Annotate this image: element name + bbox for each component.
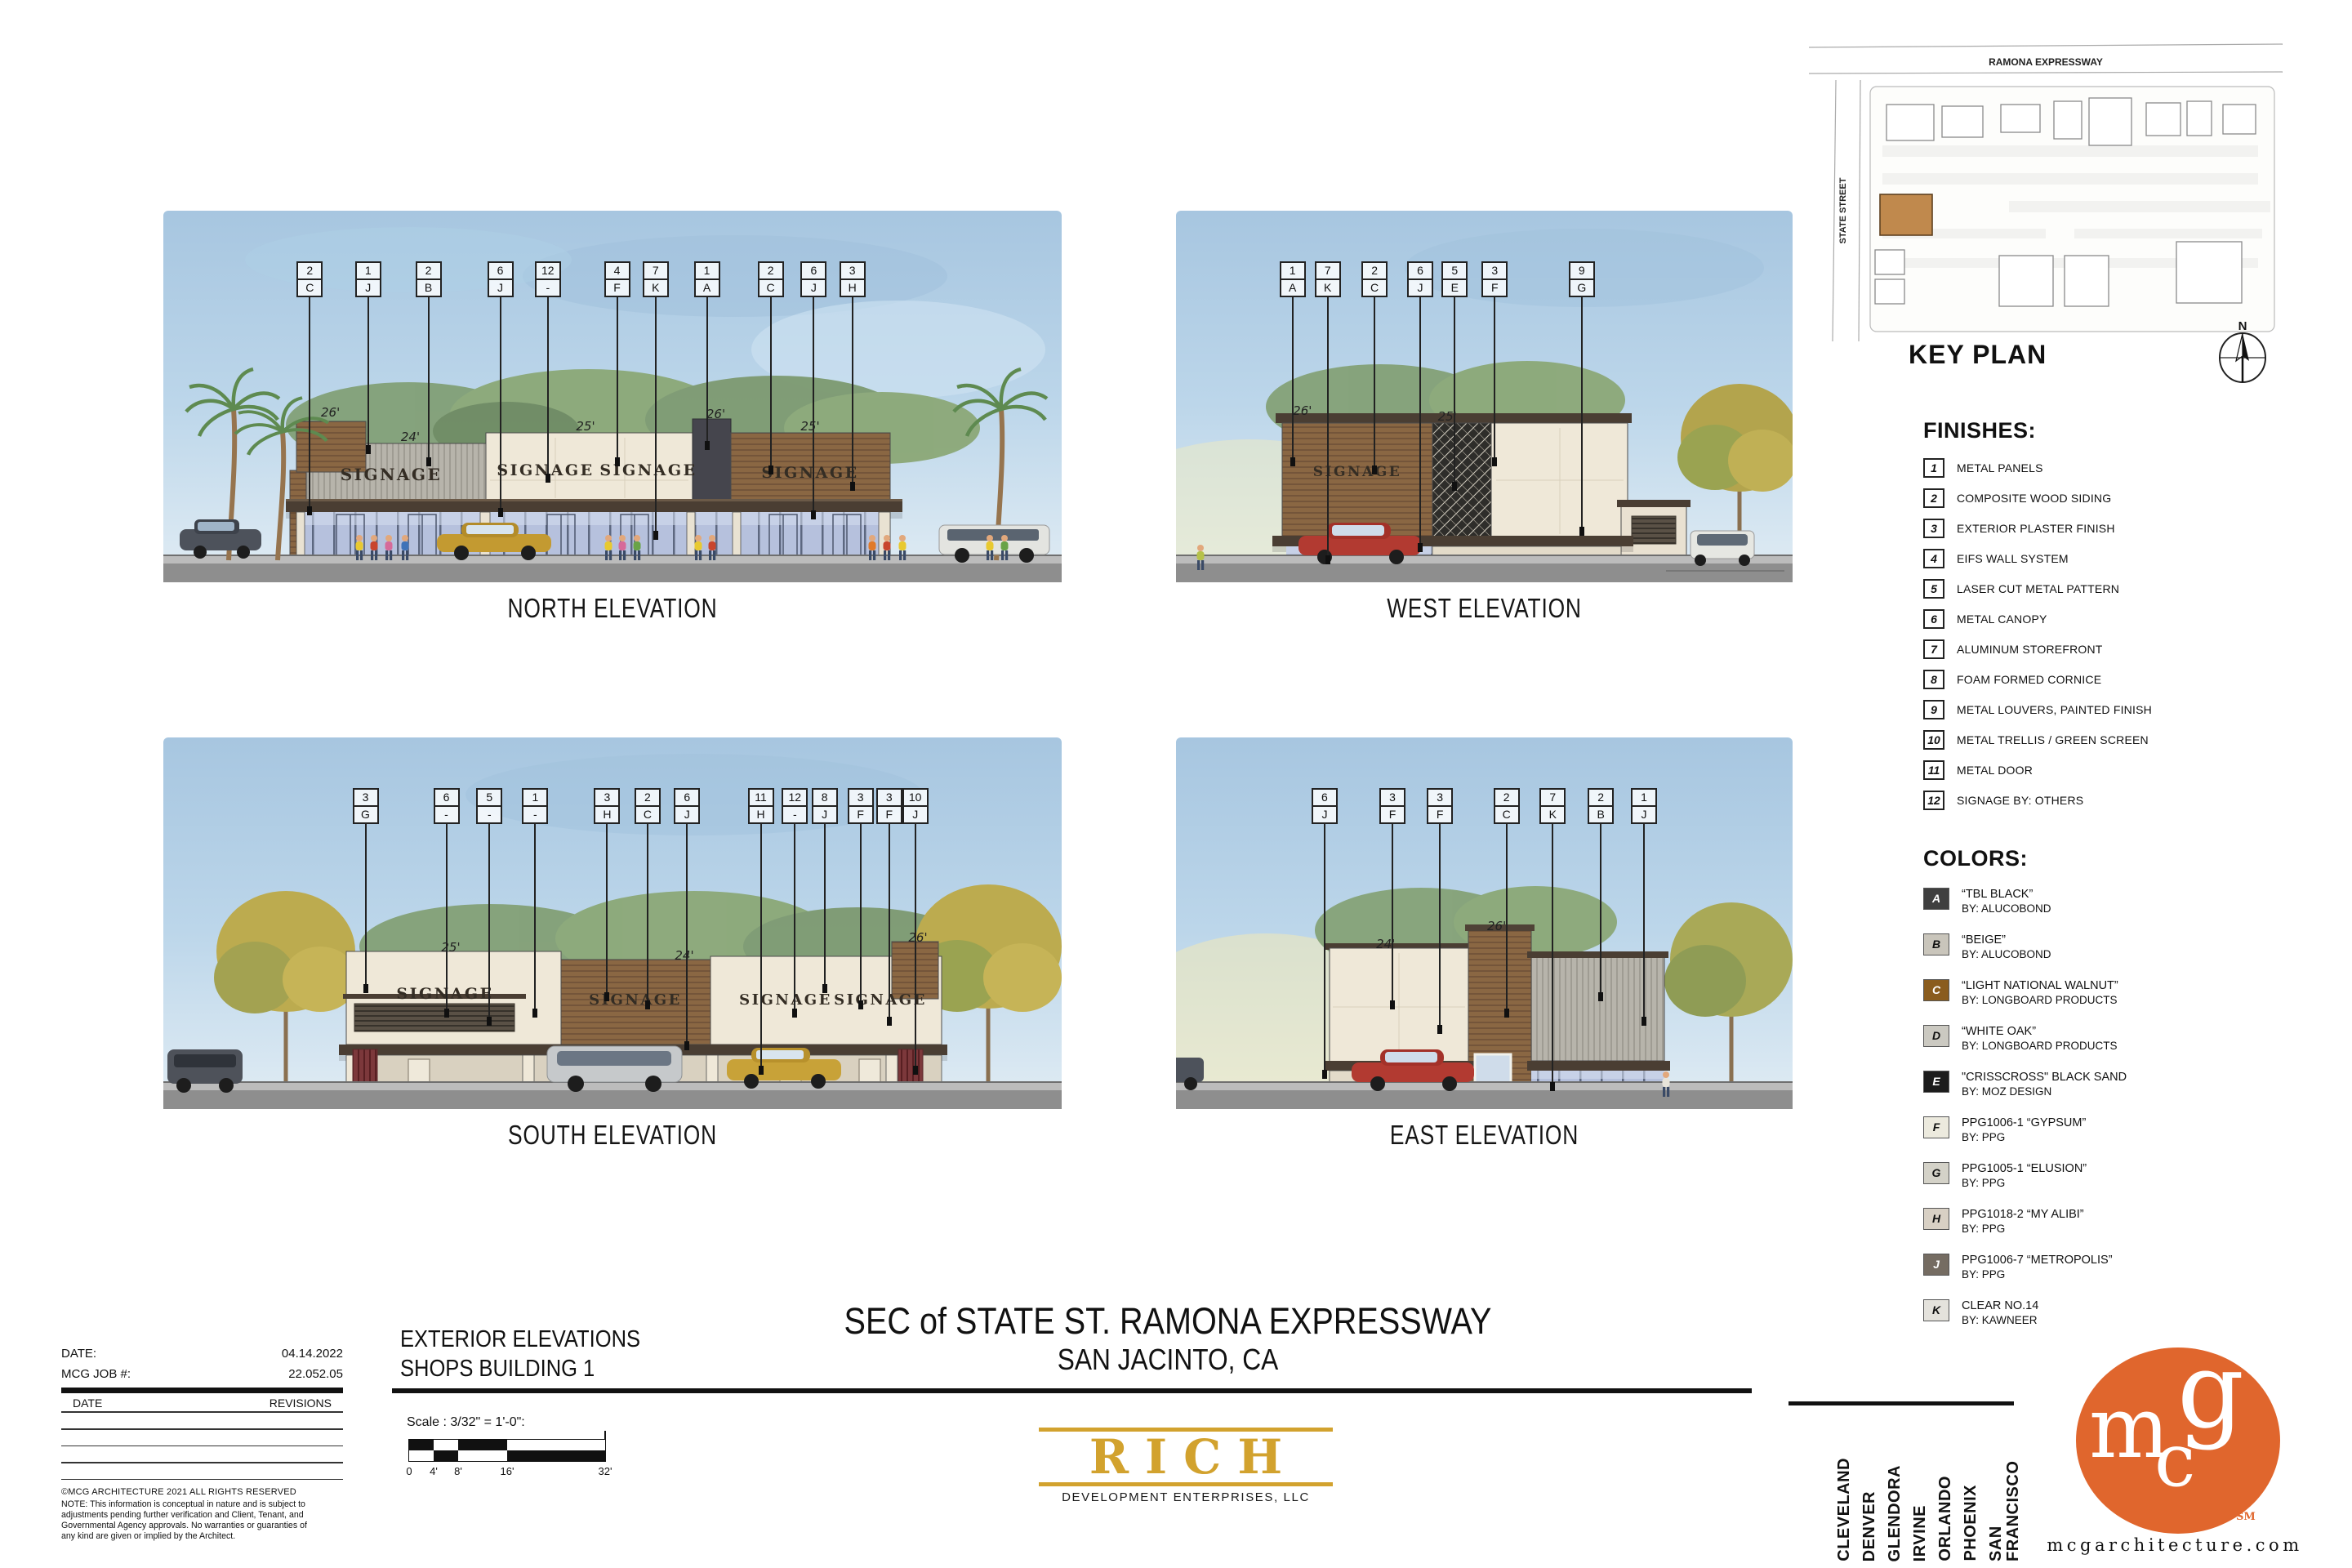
finish-number: 10 (1923, 730, 1944, 750)
rich-logo-subtitle: DEVELOPMENT ENTERPRISES, LLC (1039, 1490, 1333, 1504)
finish-number: 3 (1923, 519, 1944, 538)
finish-tag: 6J (1407, 261, 1433, 552)
finish-tag: 3F (1379, 788, 1405, 1009)
revisions-header: REVISIONS (269, 1396, 332, 1410)
finish-tag: 3H (594, 788, 620, 1001)
rich-logo: RICH DEVELOPMENT ENTERPRISES, LLC (1039, 1428, 1333, 1504)
finish-tag: 6J (488, 261, 514, 517)
project-title-line2: SAN JACINTO, CA (737, 1343, 1599, 1377)
project-title-line1: SEC of STATE ST. RAMONA EXPRESSWAY (737, 1300, 1599, 1343)
office-city: DENVER (1861, 1491, 1878, 1561)
finish-item: 11 METAL DOOR (1923, 760, 2348, 780)
mcg-architecture-logo: m g c SM (2076, 1347, 2280, 1537)
scale-tick: 8' (454, 1465, 462, 1477)
finish-tag: 3F (1481, 261, 1508, 466)
finish-item: 4 EIFS WALL SYSTEM (1923, 549, 2348, 568)
dimension-label: 25' (576, 419, 595, 434)
color-item: A “TBL BLACK” BY: ALUCOBOND (1923, 888, 2348, 915)
color-item: K CLEAR NO.14 BY: KAWNEER (1923, 1299, 2348, 1327)
finishes-title: FINISHES: (1923, 418, 2348, 443)
color-swatch: A (1923, 888, 1949, 910)
job-label: MCG JOB #: (61, 1364, 131, 1384)
finish-item: 5 LASER CUT METAL PATTERN (1923, 579, 2348, 599)
office-city: IRVINE (1912, 1505, 1929, 1561)
job-value: 22.052.05 (288, 1364, 343, 1384)
graphic-scale-bar: 04'8'16'32' (408, 1439, 606, 1462)
finish-tag: 12- (535, 261, 561, 483)
key-plan: RAMONA EXPRESSWAY STATE STREET (1805, 23, 2287, 341)
scale-tick: 32' (599, 1465, 612, 1477)
finish-tag: 7K (1539, 788, 1566, 1091)
finish-item: 3 EXTERIOR PLASTER FINISH (1923, 519, 2348, 538)
color-swatch: J (1923, 1254, 1949, 1276)
finish-item: 2 COMPOSITE WOOD SIDING (1923, 488, 2348, 508)
color-swatch: K (1923, 1299, 1949, 1321)
finish-tag: 12- (782, 788, 808, 1018)
west-elevation-panel: SIGNAGE 1A (1176, 211, 1793, 644)
finish-item: 10 METAL TRELLIS / GREEN SCREEN (1923, 730, 2348, 750)
finish-item: 1 METAL PANELS (1923, 458, 2348, 478)
color-swatch: E (1923, 1071, 1949, 1093)
finish-number: 12 (1923, 791, 1944, 810)
sheet-subtitle: EXTERIOR ELEVATIONS SHOPS BUILDING 1 (400, 1325, 673, 1383)
finish-tag: 2C (635, 788, 661, 1009)
finish-tag: 2B (1588, 788, 1614, 1001)
finish-tag: 2C (1494, 788, 1520, 1018)
color-swatch: F (1923, 1116, 1949, 1138)
color-swatch: D (1923, 1025, 1949, 1047)
colors-legend: COLORS: A “TBL BLACK” BY: ALUCOBOND B “B… (1923, 846, 2348, 1345)
finish-tag: 2C (296, 261, 323, 515)
color-swatch: G (1923, 1162, 1949, 1184)
scale-tick: 16' (501, 1465, 514, 1477)
office-city: GLENDORA (1886, 1465, 1904, 1561)
finish-item: 9 METAL LOUVERS, PAINTED FINISH (1923, 700, 2348, 719)
subject-building-highlight (1880, 194, 1932, 235)
disclaimer-note: NOTE: This information is conceptual in … (61, 1499, 343, 1542)
finish-tag: 11H (748, 788, 774, 1075)
color-swatch: B (1923, 933, 1949, 955)
finish-tag: 1J (1631, 788, 1657, 1026)
north-elevation-panel: SIGNAGE SIGNAGE SIGNAGE SIGNAGE (163, 211, 1062, 644)
finish-tag: 1A (1280, 261, 1306, 466)
finish-number: 11 (1923, 760, 1944, 780)
mcg-website: mcgarchitecture.com (2040, 1535, 2310, 1555)
finish-tag: 3F (1427, 788, 1453, 1034)
sheet-subtitle-line2: SHOPS BUILDING 1 (400, 1354, 640, 1383)
finish-tag: 10J (902, 788, 929, 1075)
key-plan-title: KEY PLAN (1909, 340, 2047, 370)
sheet-subtitle-line1: EXTERIOR ELEVATIONS (400, 1325, 640, 1354)
finish-number: 5 (1923, 579, 1944, 599)
finish-tag: 9G (1569, 261, 1595, 536)
office-city: SAN FRANCISCO (1988, 1423, 2022, 1561)
finish-tag: 3F (876, 788, 902, 1026)
office-city: PHOENIX (1962, 1485, 1980, 1561)
finish-tag: 1A (694, 261, 720, 450)
finishes-legend: FINISHES: 1 METAL PANELS 2 COMPOSITE WOO… (1923, 418, 2348, 821)
finish-tag: 5- (476, 788, 502, 1026)
colors-title: COLORS: (1923, 846, 2348, 871)
date-label: DATE: (61, 1343, 96, 1364)
revisions-date-header: DATE (73, 1396, 102, 1410)
finish-tag: 6J (674, 788, 700, 1050)
color-item: F PPG1006-1 “GYPSUM” BY: PPG (1923, 1116, 2348, 1144)
finish-number: 6 (1923, 609, 1944, 629)
copyright: ©MCG ARCHITECTURE 2021 ALL RIGHTS RESERV… (61, 1487, 343, 1497)
finish-number: 1 (1923, 458, 1944, 478)
finish-number: 7 (1923, 639, 1944, 659)
scale-label: Scale : 3/32" = 1'-0": (407, 1415, 525, 1430)
finish-number: 8 (1923, 670, 1944, 689)
finish-tag: 3F (848, 788, 874, 1009)
color-item: H PPG1018-2 “MY ALIBI” BY: PPG (1923, 1208, 2348, 1236)
finish-tag: 3G (353, 788, 379, 993)
color-item: D “WHITE OAK” BY: LONGBOARD PRODUCTS (1923, 1025, 2348, 1053)
office-cities-list: CLEVELANDDENVERGLENDORAIRVINEORLANDOPHOE… (1836, 1423, 2022, 1561)
drawing-sheet: SIGNAGE SIGNAGE SIGNAGE SIGNAGE (0, 0, 2352, 1568)
finish-number: 9 (1923, 700, 1944, 719)
color-item: E "CRISSCROSS" BLACK SAND BY: MOZ DESIGN (1923, 1071, 2348, 1098)
rich-logo-name: RICH (1039, 1432, 1333, 1482)
finish-tag: 2B (416, 261, 442, 466)
color-swatch: C (1923, 979, 1949, 1001)
title-block: DATE:04.14.2022 MCG JOB #:22.052.05 DATE… (61, 1343, 343, 1542)
finish-tag: 3H (840, 261, 866, 491)
finish-number: 2 (1923, 488, 1944, 508)
color-item: G PPG1005-1 “ELUSION” BY: PPG (1923, 1162, 2348, 1190)
svg-text:N: N (2238, 320, 2247, 333)
finish-tag: 4F (604, 261, 630, 466)
road-label: STATE STREET (1838, 177, 1848, 243)
project-title: SEC of STATE ST. RAMONA EXPRESSWAY SAN J… (678, 1300, 1658, 1377)
finish-item: 12 SIGNAGE BY: OTHERS (1923, 791, 2348, 810)
scale-tick: 4' (430, 1465, 438, 1477)
color-item: B “BEIGE” BY: ALUCOBOND (1923, 933, 2348, 961)
office-city: CLEVELAND (1836, 1458, 1853, 1561)
elevation-title: NORTH ELEVATION (253, 593, 972, 624)
finish-tag: 2C (758, 261, 784, 474)
finish-item: 7 ALUMINUM STOREFRONT (1923, 639, 2348, 659)
finish-tag: 1J (355, 261, 381, 454)
east-elevation-panel: 6J 3F 3F 2C (1176, 737, 1793, 1170)
finish-item: 6 METAL CANOPY (1923, 609, 2348, 629)
finish-tag: 6J (1312, 788, 1338, 1079)
color-swatch: H (1923, 1208, 1949, 1230)
scale-tick: 0 (406, 1465, 412, 1477)
finish-tag: 5E (1441, 261, 1468, 491)
elevation-title: SOUTH ELEVATION (253, 1120, 972, 1151)
finish-tag: 7K (643, 261, 669, 540)
date-value: 04.14.2022 (282, 1343, 343, 1364)
finish-tag: 7K (1315, 261, 1341, 564)
color-item: J PPG1006-7 “METROPOLIS” BY: PPG (1923, 1254, 2348, 1281)
north-arrow-icon: N (2213, 320, 2272, 387)
dimension-label: 26' (321, 405, 340, 420)
finish-item: 8 FOAM FORMED CORNICE (1923, 670, 2348, 689)
south-elevation-panel: SIGNAGE SIGNAGE SIGNAGE SIGNAGE (163, 737, 1062, 1170)
finish-tag: 8J (812, 788, 838, 993)
elevation-title: WEST ELEVATION (1238, 593, 1731, 624)
color-item: C “LIGHT NATIONAL WALNUT” BY: LONGBOARD … (1923, 979, 2348, 1007)
finish-tag: 1- (522, 788, 548, 1018)
office-city: ORLANDO (1937, 1476, 1954, 1561)
finish-number: 4 (1923, 549, 1944, 568)
finish-tag: 6J (800, 261, 826, 519)
finish-tag: 2C (1361, 261, 1388, 474)
elevation-title: EAST ELEVATION (1238, 1120, 1731, 1151)
finish-tag: 6- (434, 788, 460, 1018)
road-label: RAMONA EXPRESSWAY (1989, 56, 2103, 68)
